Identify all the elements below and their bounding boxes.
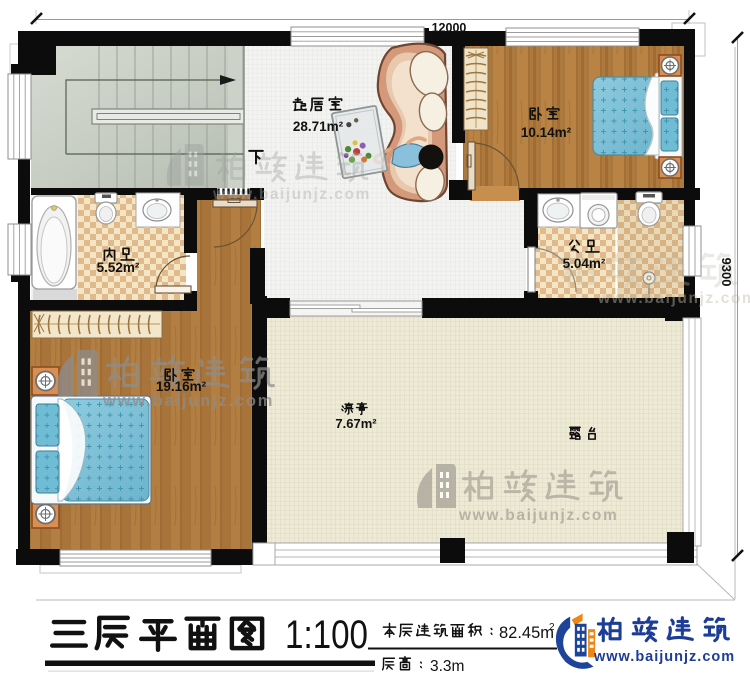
- svg-text:www.baijunjz.com: www.baijunjz.com: [597, 290, 750, 307]
- svg-text:12000: 12000: [432, 21, 467, 35]
- svg-text:www.baijunjz.com: www.baijunjz.com: [593, 649, 735, 665]
- svg-text:1:100: 1:100: [285, 613, 368, 657]
- svg-text:www.baijunjz.com: www.baijunjz.com: [212, 186, 371, 203]
- svg-text:7.67m²: 7.67m²: [335, 416, 377, 431]
- svg-text:5.04m²: 5.04m²: [563, 256, 606, 271]
- svg-text:19.16m²: 19.16m²: [156, 379, 207, 394]
- svg-text:2: 2: [549, 622, 555, 633]
- svg-text:www.baijunjz.com: www.baijunjz.com: [102, 392, 274, 410]
- svg-text:9300: 9300: [719, 258, 734, 287]
- svg-text:5.52m²: 5.52m²: [97, 260, 140, 275]
- svg-text:3.3m: 3.3m: [430, 658, 464, 675]
- svg-text:www.baijunjz.com: www.baijunjz.com: [458, 507, 618, 524]
- svg-text:28.71m²: 28.71m²: [293, 119, 344, 134]
- svg-text:82.45m: 82.45m: [499, 624, 554, 642]
- svg-text:10.14m²: 10.14m²: [521, 125, 572, 140]
